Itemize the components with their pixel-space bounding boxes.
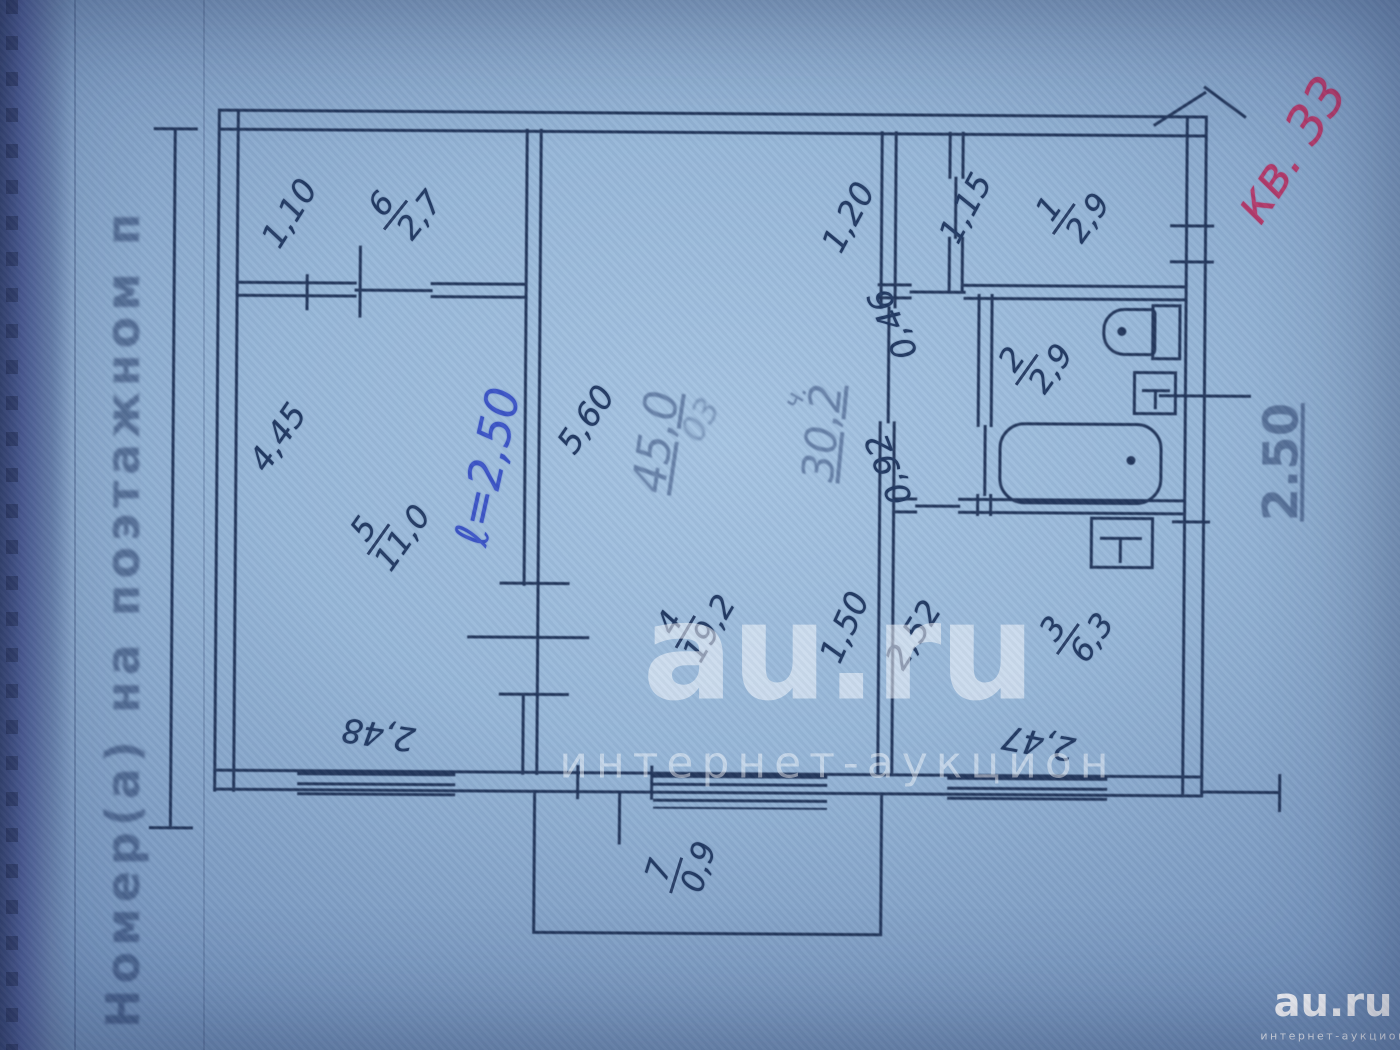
floorplan-drawing: 1,10 1,20 1,15 4,45 5,60 0,46 0,92 1,50 … xyxy=(0,0,1400,1050)
window-tick xyxy=(1170,260,1214,263)
door-opening-line xyxy=(915,505,960,508)
floorplan-photo: Номер(а) на поэтажном п xyxy=(0,0,1400,1050)
window-symbol xyxy=(297,772,455,799)
wall-segment xyxy=(213,109,240,792)
dimension-line xyxy=(169,129,177,829)
stamp-area-figure: 30,2 xyxy=(793,382,853,484)
door-opening-line xyxy=(983,425,986,496)
wall-segment xyxy=(523,129,543,586)
dimension-cap xyxy=(1278,774,1281,812)
sink-symbol-mark xyxy=(1154,389,1157,409)
dimension-cap xyxy=(154,127,198,130)
watermark-site-name: au.ru xyxy=(642,574,1033,731)
wall-segment xyxy=(237,281,357,298)
dimension-cap xyxy=(149,826,193,829)
dimension-tick xyxy=(467,635,589,639)
watermark-site-tagline: интернет-аукцион xyxy=(559,738,1116,789)
dimension-tick xyxy=(305,274,308,310)
door-opening-line xyxy=(355,289,433,293)
bathtub-symbol xyxy=(998,422,1163,505)
balcony-divider-line xyxy=(618,792,621,844)
dimension-tick xyxy=(500,582,570,585)
vent-flag-symbol xyxy=(1203,86,1247,119)
dimension-line xyxy=(1203,791,1281,795)
toilet-symbol-dot xyxy=(1117,327,1126,336)
dimension-tick xyxy=(358,246,362,318)
toilet-symbol xyxy=(1102,308,1156,356)
margin-dimension-print: 2.50 xyxy=(1253,403,1310,522)
wall-segment xyxy=(880,131,898,308)
door-opening-line xyxy=(536,584,540,698)
radiator-symbol-mark xyxy=(1119,537,1122,563)
window-tick xyxy=(1170,224,1214,227)
toilet-tank-symbol xyxy=(1151,304,1181,360)
wall-segment xyxy=(521,696,539,775)
wall-segment xyxy=(1181,115,1208,797)
dimension-tick xyxy=(1172,520,1210,523)
dimension-tick xyxy=(499,693,569,696)
wall-segment xyxy=(964,284,1188,302)
bathtub-symbol-dot xyxy=(1126,456,1135,465)
site-logo-tagline: интернет-аукцион xyxy=(1260,1030,1400,1043)
wall-segment xyxy=(431,282,527,299)
site-logo: au.ru xyxy=(1274,980,1393,1026)
wall-segment xyxy=(218,109,1208,138)
